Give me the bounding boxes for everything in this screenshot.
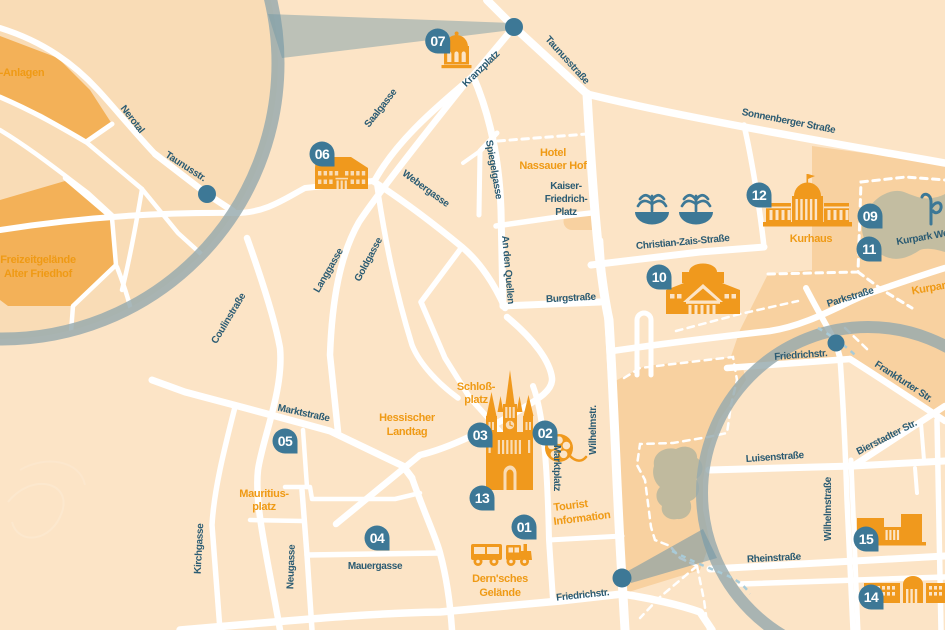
svg-text:Gelände: Gelände	[479, 587, 520, 599]
svg-text:02: 02	[538, 425, 553, 441]
svg-text:12: 12	[752, 187, 767, 203]
svg-text:Wilhelmstraße: Wilhelmstraße	[823, 476, 834, 541]
svg-text:Platz: Platz	[555, 207, 577, 218]
svg-text:Neugasse: Neugasse	[285, 544, 298, 590]
svg-text:14: 14	[864, 589, 879, 605]
svg-text:Landtag: Landtag	[387, 426, 428, 438]
svg-text:05: 05	[278, 433, 293, 449]
svg-text:15: 15	[859, 531, 874, 547]
svg-text:04: 04	[370, 530, 385, 546]
svg-text:Marktplatz: Marktplatz	[551, 445, 562, 491]
svg-text:Friedrich-: Friedrich-	[545, 194, 588, 205]
svg-text:Hotel: Hotel	[540, 147, 566, 159]
svg-text:Nassauer Hof: Nassauer Hof	[519, 160, 587, 172]
svg-text:Dern'sches: Dern'sches	[472, 573, 528, 585]
svg-text:-Anlagen: -Anlagen	[0, 67, 45, 79]
svg-text:Kurhaus: Kurhaus	[790, 233, 833, 245]
svg-text:platz: platz	[464, 394, 488, 406]
svg-text:Wilhelmstr.: Wilhelmstr.	[588, 405, 599, 455]
svg-text:11: 11	[862, 241, 877, 257]
svg-text:Schloß-: Schloß-	[457, 381, 496, 393]
svg-text:Mauritius-: Mauritius-	[239, 488, 289, 500]
svg-text:Hessischer: Hessischer	[379, 412, 436, 424]
svg-text:10: 10	[652, 269, 667, 285]
svg-text:07: 07	[430, 33, 445, 49]
svg-text:Kaiser-: Kaiser-	[550, 181, 581, 192]
svg-text:Alter Friedhof: Alter Friedhof	[4, 268, 73, 280]
svg-text:09: 09	[863, 208, 878, 224]
svg-text:06: 06	[315, 146, 330, 162]
svg-text:Mauergasse: Mauergasse	[348, 561, 403, 572]
svg-text:01: 01	[517, 519, 532, 535]
svg-text:13: 13	[475, 490, 490, 506]
svg-text:03: 03	[473, 427, 488, 443]
svg-text:platz: platz	[252, 501, 276, 513]
svg-text:Freizeitgelände: Freizeitgelände	[0, 254, 76, 266]
